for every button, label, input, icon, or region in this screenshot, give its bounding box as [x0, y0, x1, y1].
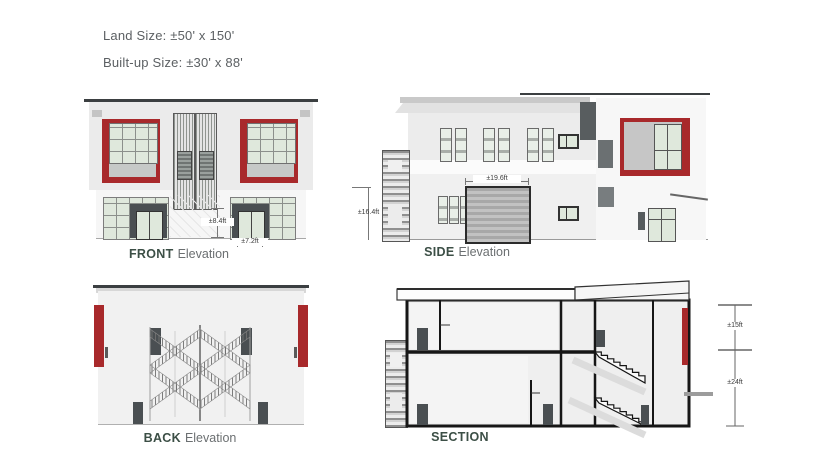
back-label-bold: BACK [144, 431, 181, 445]
front-right-door-surround [232, 204, 269, 238]
section-lower-floor-dim: ±24ft [719, 379, 751, 387]
side-dark-inset-lower [598, 187, 614, 207]
front-right-red-window [240, 119, 298, 183]
back-stair-towers [144, 325, 258, 425]
back-lower-door-right [258, 402, 268, 424]
front-right-window-glass [247, 123, 296, 164]
front-door-height-dim: ±8.4ft [201, 218, 234, 226]
back-wall-mark [105, 347, 108, 358]
side-louver-stack [382, 150, 410, 242]
side-stack-window-upper [388, 160, 402, 172]
front-label-rest: Elevation [178, 247, 229, 261]
side-glass-door [648, 208, 676, 242]
side-roofline [520, 93, 710, 95]
front-right-window-spandrel [247, 164, 294, 177]
side-dark-inset-upper [598, 140, 613, 168]
side-upper-window [455, 128, 467, 162]
section-label: SECTION [402, 430, 522, 444]
side-roof-slab [395, 103, 595, 113]
side-small-window-lower [558, 206, 579, 221]
section-label-bold: SECTION [431, 430, 489, 444]
front-left-red-window [102, 119, 160, 183]
side-upper-window [527, 128, 539, 162]
side-upper-window [440, 128, 452, 162]
side-lower-window [449, 196, 459, 224]
side-lower-window [438, 196, 448, 224]
side-upper-window [542, 128, 554, 162]
front-door-width-dim: ±7.2ft [232, 238, 268, 246]
side-label-rest: Elevation [458, 245, 509, 259]
front-corbel-left [92, 110, 102, 117]
side-upper-window [498, 128, 510, 162]
front-left-window-spandrel [109, 164, 156, 177]
side-stack-window-lower [388, 206, 402, 228]
front-dim-tick-bottom [211, 237, 224, 238]
side-red-box-window [654, 124, 682, 170]
side-chimney-band [580, 102, 596, 140]
back-elevation-label: BACKElevation [110, 431, 270, 445]
front-left-door-surround [130, 204, 167, 238]
side-elevation-label: SIDEElevation [392, 245, 542, 259]
front-dim-tick-top [211, 208, 224, 209]
section-upper-floor-dim: ±15ft [719, 322, 751, 330]
front-corbel-right [300, 110, 310, 117]
back-label-rest: Elevation [185, 431, 236, 445]
back-elevation-drawing: BACKElevation [92, 283, 310, 451]
side-upper-window [483, 128, 495, 162]
back-lower-door-left [133, 402, 143, 424]
front-right-door [238, 211, 265, 240]
architectural-drawing-sheet: Land Size: ±50' x 150' Built-up Size: ±3… [0, 0, 819, 465]
side-garage-width-dim: ±19.6ft [473, 175, 521, 183]
front-left-window-glass [109, 123, 158, 164]
section-drawing: ±15ft ±24ft SECTION [383, 278, 755, 460]
front-elevation-drawing: ±8.4ft ±7.2ft FRONTElevation [84, 95, 318, 265]
front-louver-grille-left [177, 151, 192, 180]
side-narrow-dark-window [638, 212, 645, 230]
front-label-bold: FRONT [129, 247, 174, 261]
back-roofline [93, 285, 309, 288]
front-stair-hatch [170, 195, 220, 237]
built-up-size-text: Built-up Size: ±30' x 88' [103, 55, 243, 70]
front-left-door [136, 211, 163, 240]
front-louver-grille-right [199, 151, 214, 180]
back-wall-mark [294, 347, 297, 358]
back-red-strip-left [94, 305, 104, 367]
side-garage-door [465, 186, 531, 244]
side-red-window-box [620, 118, 690, 176]
front-elevation-label: FRONTElevation [99, 247, 259, 261]
side-elevation-drawing: ±16.4ft ±19.6ft SIDEE [352, 90, 718, 265]
side-label-bold: SIDE [424, 245, 454, 259]
back-red-strip-right [298, 305, 308, 367]
side-roof-fascia [400, 97, 590, 103]
side-floor-band [408, 160, 598, 174]
side-small-window-upper [558, 134, 579, 149]
side-height-dim: ±16.4ft [352, 209, 385, 217]
land-size-text: Land Size: ±50' x 150' [103, 28, 234, 43]
